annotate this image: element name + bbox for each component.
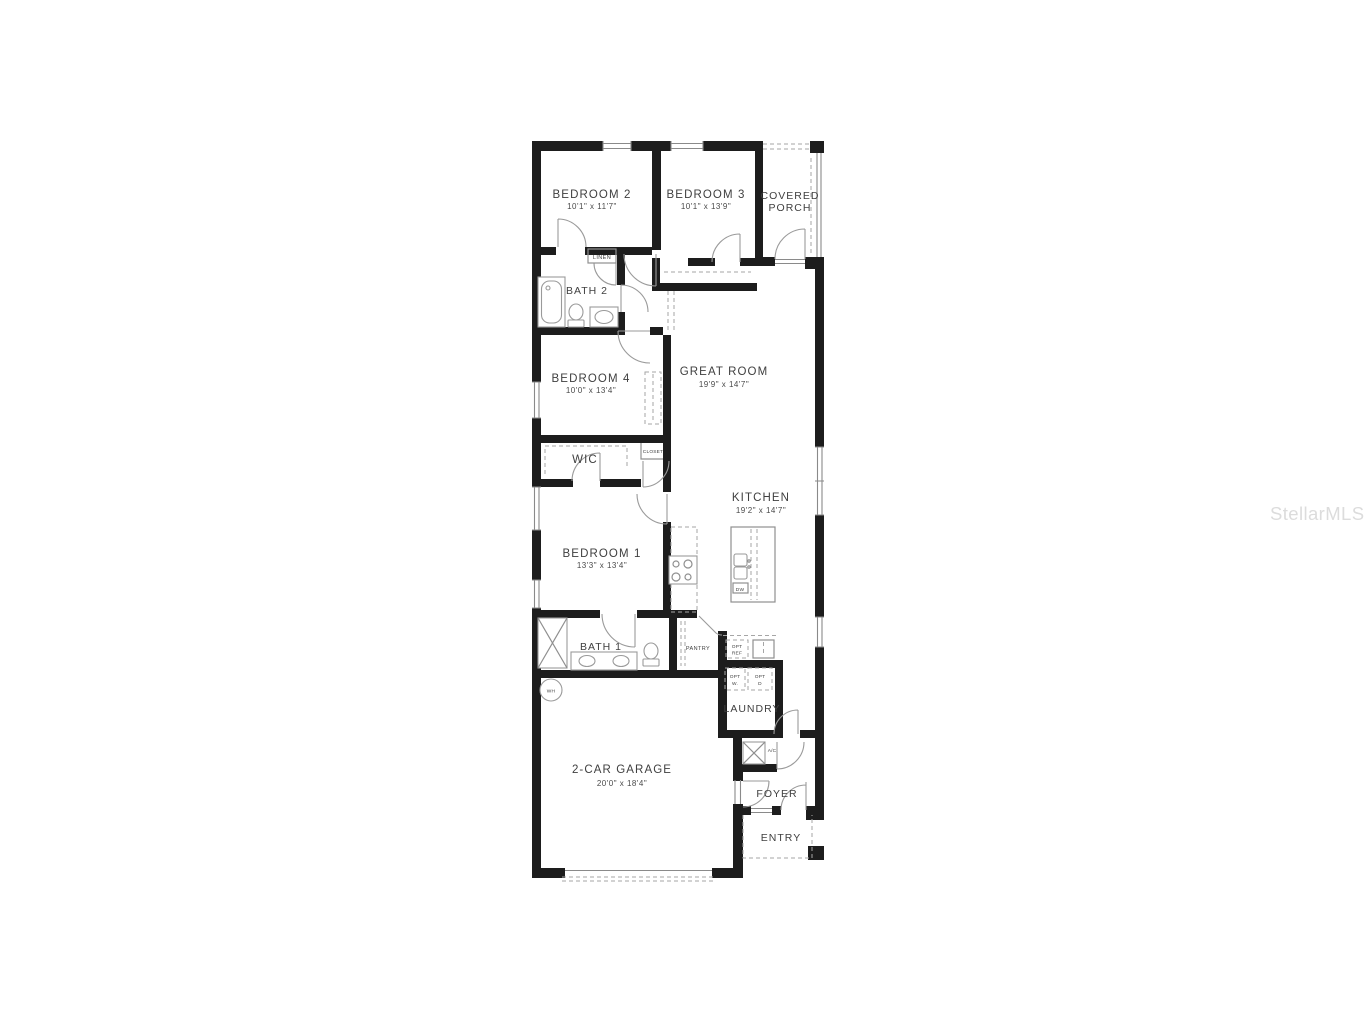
foyer-label: FOYER (756, 788, 797, 800)
sink2-bath1 (613, 656, 629, 667)
porch-door-threshold (775, 260, 805, 264)
bedroom4-name-label: BEDROOM 4 (552, 373, 631, 385)
laundry-label: LAUNDRY (724, 703, 781, 715)
bedroom4-door (618, 331, 650, 363)
bedroom2-door (558, 219, 586, 247)
greatroom-dims-label: 19'9" x 14'7" (699, 380, 749, 389)
island-sink-basin-2 (734, 567, 747, 579)
dishwasher-label: DW (736, 587, 745, 593)
cased-opening-hall (668, 291, 674, 332)
garage-door-panel (562, 877, 714, 881)
ac-closet-door (777, 742, 804, 769)
window-right-kitchen (815, 617, 824, 647)
bathtub-drain (546, 286, 550, 290)
opt-washer-label-line1: OPT (730, 674, 740, 680)
window-left-bedroom1-lower (532, 580, 541, 608)
entry-sidelight (751, 809, 772, 813)
linen-label: LINEN (593, 255, 611, 261)
ac-label: A/C (768, 748, 777, 754)
pantry-shelves (681, 621, 685, 666)
window-left-bedroom1-upper (532, 487, 541, 530)
toilet-tank-bath1 (643, 659, 659, 666)
opt-ref-label-line2: REF (732, 651, 742, 657)
page: { "watermark": "StellarMLS", "rooms": { … (0, 0, 1365, 1023)
sink-bath2 (595, 311, 613, 324)
bedroom4-dims-label: 10'0" x 13'4" (566, 386, 616, 395)
garage-service-door-frame (735, 780, 741, 804)
utility-fixtures (540, 679, 765, 764)
kitchen-name-label: KITCHEN (732, 492, 790, 504)
toilet-bowl-bath2 (569, 304, 583, 320)
bath2-door (621, 285, 648, 312)
kitchen-dims-label: 19'2" x 14'7" (736, 506, 786, 515)
island-sink-basin-1 (734, 554, 747, 566)
entry-label: ENTRY (761, 832, 801, 844)
closet-label: CLOSET (643, 449, 663, 455)
window-top-bedroom2 (603, 141, 631, 151)
water-heater-label: WH (547, 689, 556, 695)
opt-washer-label-line2: W. (732, 681, 738, 687)
bedroom2-name-label: BEDROOM 2 (553, 189, 632, 201)
window-top-bedroom3 (671, 141, 703, 151)
faucet-dot-1 (748, 560, 750, 562)
wic-label: WIC (572, 454, 598, 466)
island-counter-line (751, 529, 757, 600)
bedroom1-door (637, 494, 667, 524)
bath1-label: BATH 1 (580, 641, 622, 653)
opt-dryer-label-line1: OPT (755, 674, 765, 680)
floor-plan-canvas: BEDROOM 2 10'1" x 11'7" BEDROOM 3 10'1" … (0, 0, 1365, 1023)
watermark: StellarMLS (1270, 503, 1364, 525)
porch-roof-line (763, 144, 810, 149)
faucet-dot-2 (748, 566, 750, 568)
bedroom4-closet (645, 372, 661, 424)
opt-dryer-label-line2: D (758, 681, 762, 687)
bedroom2-dims-label: 10'1" x 11'7" (567, 202, 617, 211)
opt-ref-label-line1: OPT (732, 644, 742, 650)
bedroom3-name-label: BEDROOM 3 (667, 189, 746, 201)
porch-door (775, 229, 805, 259)
toilet-tank-bath2 (568, 320, 584, 327)
window-right-greatroom (815, 447, 824, 515)
bedroom1-dims-label: 13'3" x 13'4" (577, 561, 627, 570)
bath2-label: BATH 2 (566, 285, 608, 297)
bedroom3-door (624, 254, 656, 286)
sink1-bath1 (579, 656, 595, 667)
window-left-bedroom4 (532, 382, 541, 418)
bedroom3-closet-door (712, 234, 740, 262)
bedroom3-dims-label: 10'1" x 13'9" (681, 202, 731, 211)
porch-label-line1: COVERED (761, 190, 820, 202)
bathtub-basin (542, 281, 562, 323)
bedroom1-name-label: BEDROOM 1 (563, 548, 642, 560)
porch-screen-wall (817, 153, 821, 257)
pantry-label: PANTRY (686, 646, 710, 652)
linen-door (594, 263, 616, 285)
toilet-bowl-bath1 (644, 643, 658, 659)
porch-label-line2: PORCH (769, 202, 812, 214)
greatroom-name-label: GREAT ROOM (680, 366, 769, 378)
garage-dims-label: 20'0" x 18'4" (597, 779, 647, 788)
garage-name-label: 2-CAR GARAGE (572, 764, 672, 776)
